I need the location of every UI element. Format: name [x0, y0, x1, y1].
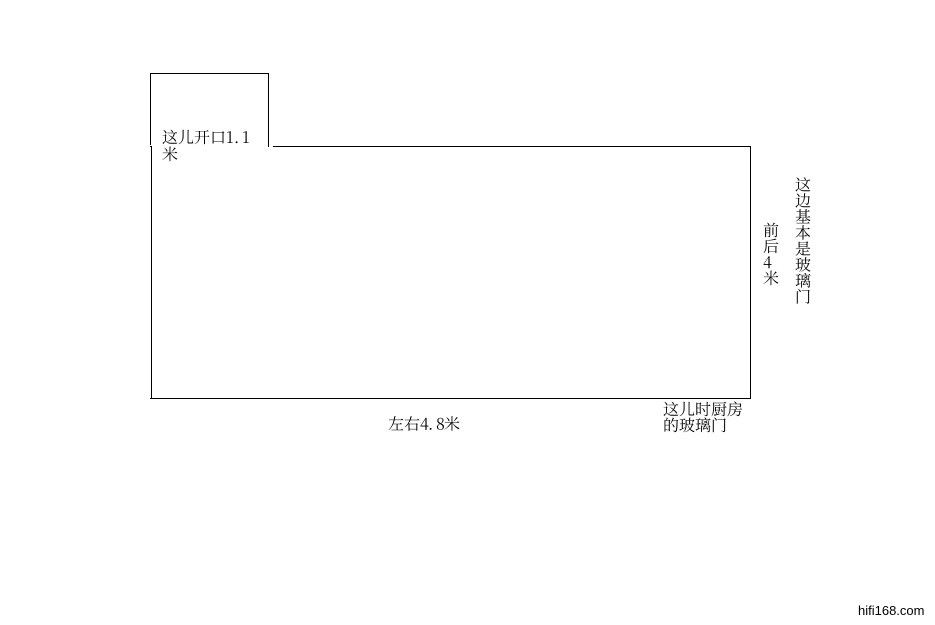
svg-text:hifi168.com: hifi168.com [858, 603, 924, 618]
